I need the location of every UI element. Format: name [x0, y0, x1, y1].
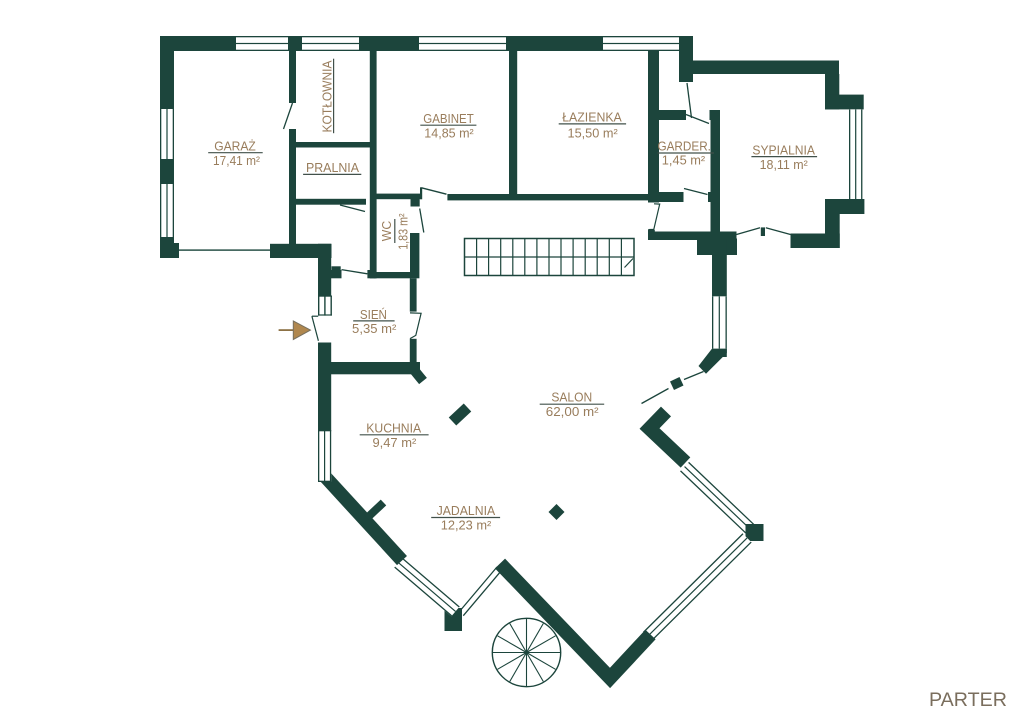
svg-text:SIEŃ: SIEŃ [360, 307, 387, 322]
svg-text:ŁAZIENKA: ŁAZIENKA [562, 110, 622, 125]
svg-text:WC: WC [379, 221, 394, 241]
svg-text:PARTER: PARTER [929, 690, 1007, 711]
svg-text:1,83 m²: 1,83 m² [396, 213, 411, 250]
svg-text:SYPIALNIA: SYPIALNIA [752, 143, 815, 158]
svg-text:62,00 m²: 62,00 m² [546, 404, 600, 419]
svg-text:14,85 m²: 14,85 m² [424, 125, 474, 140]
svg-text:KOTŁOWNIA: KOTŁOWNIA [320, 60, 335, 132]
svg-text:GARDER.: GARDER. [657, 138, 711, 153]
svg-text:15,50 m²: 15,50 m² [568, 126, 619, 141]
svg-text:5,35 m²: 5,35 m² [352, 321, 397, 336]
svg-text:PRALNIA: PRALNIA [306, 160, 359, 175]
svg-text:GABINET: GABINET [423, 111, 474, 126]
svg-text:JADALNIA: JADALNIA [437, 503, 496, 518]
svg-text:17,41 m²: 17,41 m² [213, 153, 261, 168]
svg-text:9,47 m²: 9,47 m² [372, 435, 417, 450]
svg-text:12,23 m²: 12,23 m² [441, 518, 492, 533]
svg-text:1,45 m²: 1,45 m² [662, 153, 706, 168]
svg-text:GARAŻ: GARAŻ [214, 139, 256, 154]
svg-text:18,11 m²: 18,11 m² [760, 157, 809, 172]
svg-text:SALON: SALON [551, 390, 592, 405]
svg-text:KUCHNIA: KUCHNIA [366, 421, 421, 436]
